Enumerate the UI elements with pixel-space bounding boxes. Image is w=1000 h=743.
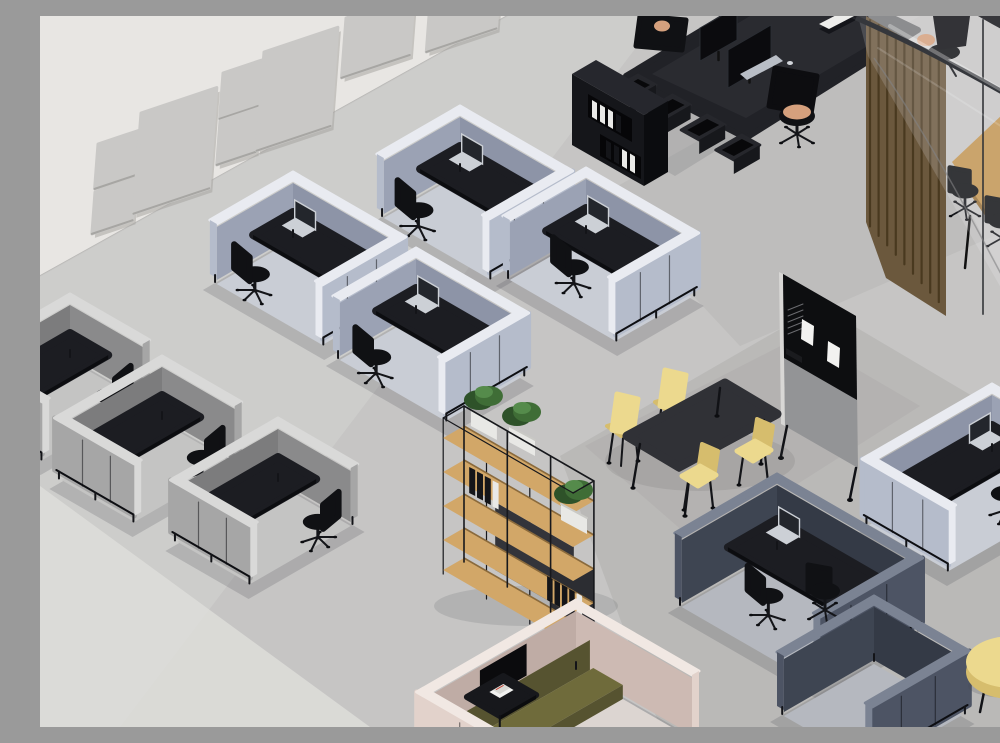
binder [616, 114, 621, 134]
binder [608, 109, 613, 129]
binder [469, 467, 475, 496]
binder [600, 105, 605, 125]
mouse [787, 61, 793, 65]
scene-canvas [40, 16, 1000, 727]
binder [622, 149, 627, 169]
person-at-desk [636, 16, 686, 50]
binder [614, 145, 619, 165]
binder [606, 140, 611, 160]
person-skin [654, 21, 670, 32]
office-isometric-render: Isometric 3D render of an open-plan offi… [40, 16, 1000, 727]
binder [630, 154, 635, 174]
binder [485, 476, 491, 505]
binder [493, 481, 499, 510]
binder [592, 100, 597, 120]
seat-cushion [783, 105, 811, 120]
binder [477, 472, 483, 501]
binder [555, 580, 561, 607]
